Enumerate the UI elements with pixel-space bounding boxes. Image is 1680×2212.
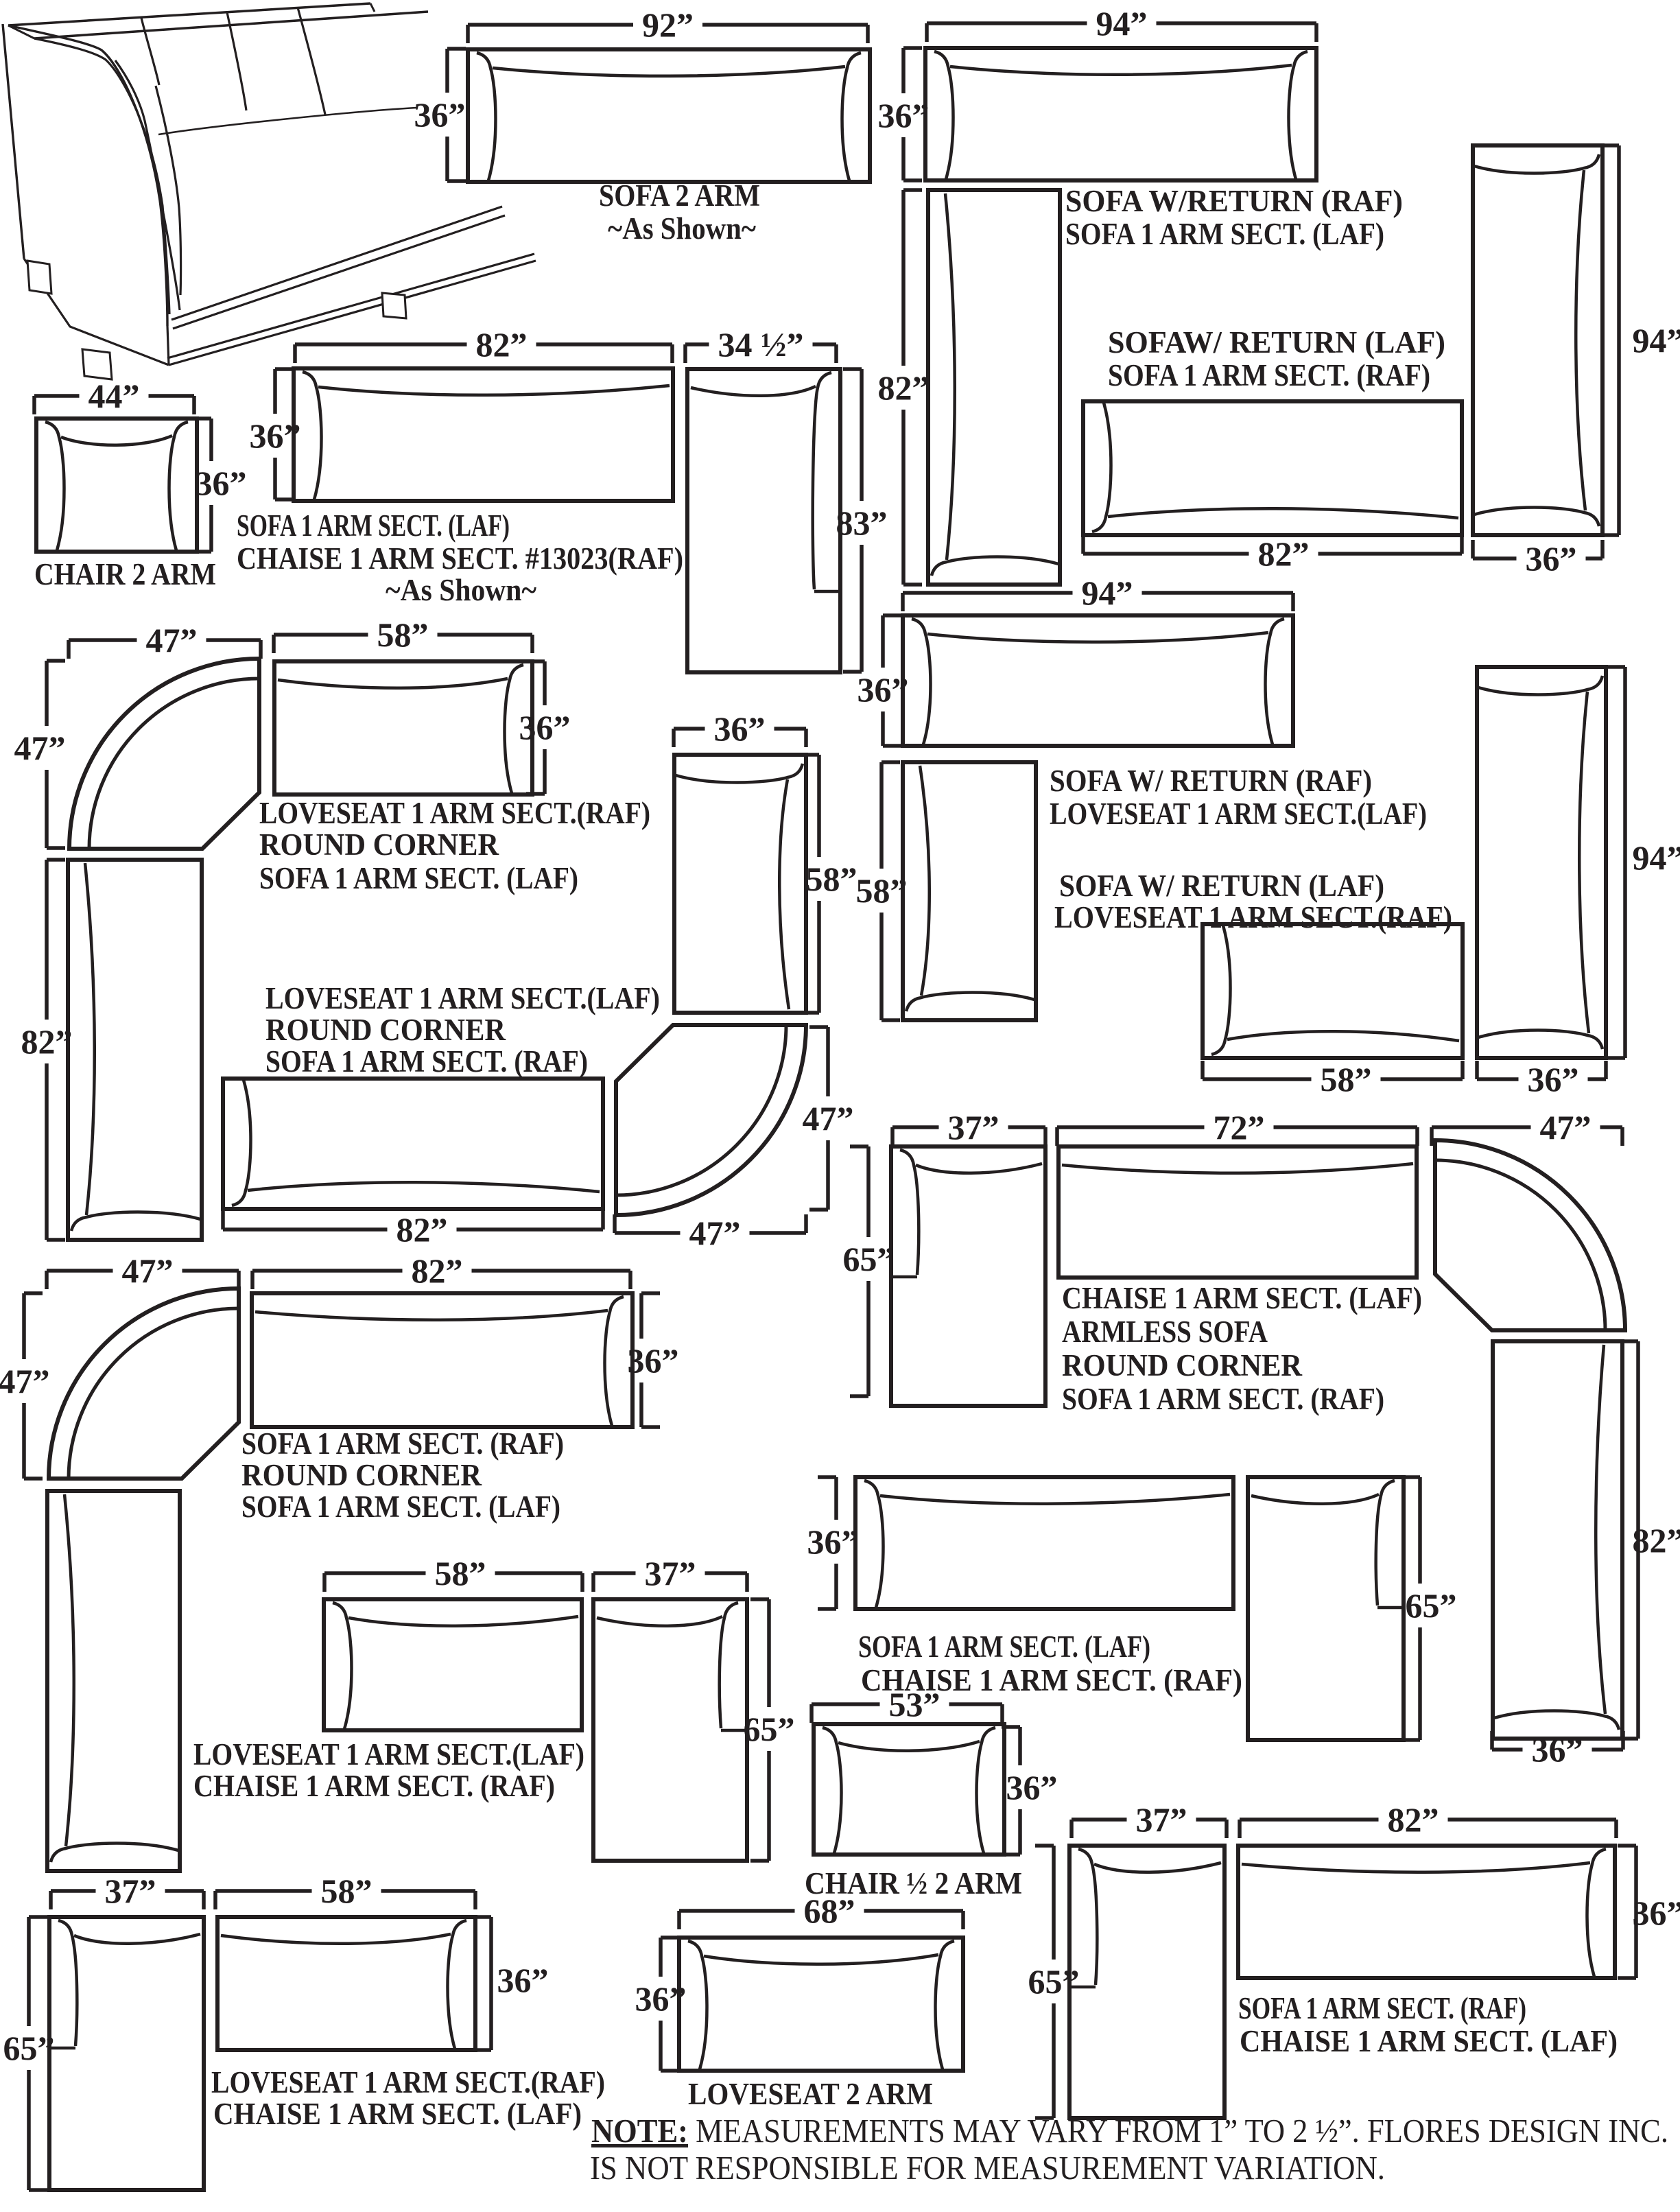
svg-text:82”: 82” xyxy=(878,368,930,407)
svg-text:36”: 36” xyxy=(250,416,301,455)
svg-text:CHAISE 1 ARM SECT. #13023(RAF): CHAISE 1 ARM SECT. #13023(RAF) xyxy=(237,541,683,576)
svg-text:94”: 94” xyxy=(1633,838,1680,877)
svg-text:58”: 58” xyxy=(321,1872,372,1910)
svg-text:LOVESEAT 1 ARM SECT.(LAF): LOVESEAT 1 ARM SECT.(LAF) xyxy=(265,981,660,1015)
svg-text:CHAISE 1 ARM SECT. (RAF): CHAISE 1 ARM SECT. (RAF) xyxy=(861,1663,1242,1697)
svg-text:SOFA 1 ARM SECT. (LAF): SOFA 1 ARM SECT. (LAF) xyxy=(858,1629,1150,1664)
svg-text:47”: 47” xyxy=(689,1214,741,1252)
svg-text:36”: 36” xyxy=(635,1979,687,2018)
svg-text:47”: 47” xyxy=(14,729,66,767)
svg-text:37”: 37” xyxy=(105,1872,156,1910)
svg-text:94”: 94” xyxy=(1633,321,1680,360)
svg-text:LOVESEAT 2 ARM: LOVESEAT 2 ARM xyxy=(688,2077,933,2111)
svg-text:82”: 82” xyxy=(1388,1800,1439,1839)
svg-text:ROUND CORNER: ROUND CORNER xyxy=(241,1458,482,1492)
svg-text:SOFA 1 ARM SECT. (RAF): SOFA 1 ARM SECT. (RAF) xyxy=(1108,358,1430,392)
svg-text:92”: 92” xyxy=(642,5,694,44)
svg-text:SOFA 1 ARM SECT. (RAF): SOFA 1 ARM SECT. (RAF) xyxy=(241,1426,564,1461)
svg-text:SOFA 2 ARM: SOFA 2 ARM xyxy=(599,178,760,213)
svg-text:37”: 37” xyxy=(645,1554,696,1592)
svg-text:82”: 82” xyxy=(412,1251,463,1290)
svg-text:36”: 36” xyxy=(196,464,247,502)
svg-text:36”: 36” xyxy=(857,670,909,709)
svg-text:LOVESEAT 1 ARM SECT.(LAF): LOVESEAT 1 ARM SECT.(LAF) xyxy=(1050,797,1427,831)
svg-text:47”: 47” xyxy=(803,1099,854,1138)
svg-text:36”: 36” xyxy=(807,1522,859,1561)
svg-text:ROUND CORNER: ROUND CORNER xyxy=(265,1013,506,1047)
svg-text:47”: 47” xyxy=(122,1251,174,1290)
svg-text:83”: 83” xyxy=(836,504,888,542)
svg-text:~As Shown~: ~As Shown~ xyxy=(386,573,537,607)
svg-text:SOFA 1 ARM SECT. (LAF): SOFA 1 ARM SECT. (LAF) xyxy=(241,1490,560,1524)
svg-text:44”: 44” xyxy=(88,377,140,415)
svg-text:NOTE: MEASUREMENTS MAY VARY FR: NOTE: MEASUREMENTS MAY VARY FROM 1” TO 2… xyxy=(591,2112,1668,2150)
svg-text:SOFA 1 ARM SECT. (LAF): SOFA 1 ARM SECT. (LAF) xyxy=(259,861,578,895)
svg-text:ROUND CORNER: ROUND CORNER xyxy=(1062,1348,1302,1382)
svg-text:37”: 37” xyxy=(1136,1800,1187,1839)
svg-text:65”: 65” xyxy=(744,1710,795,1748)
svg-text:58”: 58” xyxy=(435,1554,486,1592)
svg-text:58”: 58” xyxy=(806,860,857,898)
svg-text:SOFA 1 ARM SECT. (LAF): SOFA 1 ARM SECT. (LAF) xyxy=(1065,217,1384,251)
svg-text:CHAIR 2 ARM: CHAIR 2 ARM xyxy=(34,557,216,591)
svg-text:36”: 36” xyxy=(1526,539,1577,578)
svg-text:82”: 82” xyxy=(21,1022,73,1061)
svg-text:SOFA W/ RETURN (LAF): SOFA W/ RETURN (LAF) xyxy=(1059,869,1384,903)
svg-text:82”: 82” xyxy=(476,325,528,364)
svg-text:37”: 37” xyxy=(948,1108,999,1146)
svg-text:CHAIR ½ 2 ARM: CHAIR ½ 2 ARM xyxy=(805,1866,1022,1901)
svg-text:36”: 36” xyxy=(1532,1730,1583,1769)
svg-text:~As Shown~: ~As Shown~ xyxy=(608,211,757,246)
svg-text:94”: 94” xyxy=(1096,4,1148,43)
svg-text:47”: 47” xyxy=(0,1362,50,1400)
svg-text:LOVESEAT 1 ARM SECT.(RAF): LOVESEAT 1 ARM SECT.(RAF) xyxy=(259,796,650,830)
svg-text:65”: 65” xyxy=(3,2029,55,2067)
svg-text:CHAISE 1 ARM SECT. (LAF): CHAISE 1 ARM SECT. (LAF) xyxy=(1240,2024,1618,2058)
svg-text:SOFA 1 ARM SECT. (RAF): SOFA 1 ARM SECT. (RAF) xyxy=(1062,1382,1384,1416)
svg-text:CHAISE 1 ARM SECT. (LAF): CHAISE 1 ARM SECT. (LAF) xyxy=(1062,1281,1422,1315)
svg-text:82”: 82” xyxy=(1258,534,1310,573)
svg-text:SOFA 1 ARM SECT. (RAF): SOFA 1 ARM SECT. (RAF) xyxy=(1238,1991,1526,2025)
svg-text:36”: 36” xyxy=(714,709,766,748)
svg-text:34 ½”: 34 ½” xyxy=(718,325,804,364)
svg-text:LOVESEAT 1 ARM SECT.(LAF): LOVESEAT 1 ARM SECT.(LAF) xyxy=(193,1737,584,1772)
svg-text:CHAISE 1 ARM SECT. (RAF): CHAISE 1 ARM SECT. (RAF) xyxy=(193,1769,555,1803)
svg-text:LOVESEAT 1 ARM SECT.(RAF): LOVESEAT 1 ARM SECT.(RAF) xyxy=(1054,900,1452,934)
svg-text:SOFA W/RETURN (RAF): SOFA W/RETURN (RAF) xyxy=(1065,184,1403,218)
svg-text:CHAISE 1 ARM SECT. (LAF): CHAISE 1 ARM SECT. (LAF) xyxy=(213,2097,582,2131)
svg-text:36”: 36” xyxy=(519,708,571,746)
svg-text:65”: 65” xyxy=(1406,1586,1457,1625)
svg-text:IS NOT RESPONSIBLE FOR MEASURE: IS NOT RESPONSIBLE FOR MEASUREMENT VARIA… xyxy=(590,2149,1385,2187)
svg-text:ROUND CORNER: ROUND CORNER xyxy=(259,827,499,862)
svg-text:36”: 36” xyxy=(878,96,930,134)
svg-text:47”: 47” xyxy=(146,621,198,659)
svg-text:SOFAW/ RETURN (LAF): SOFAW/ RETURN (LAF) xyxy=(1108,325,1445,360)
svg-text:36”: 36” xyxy=(1006,1768,1058,1807)
svg-text:72”: 72” xyxy=(1214,1108,1265,1146)
svg-text:LOVESEAT 1 ARM SECT.(RAF): LOVESEAT 1 ARM SECT.(RAF) xyxy=(211,2065,605,2099)
svg-text:94”: 94” xyxy=(1082,574,1133,612)
svg-text:65”: 65” xyxy=(843,1240,895,1278)
svg-text:36”: 36” xyxy=(497,1961,549,1999)
svg-text:36”: 36” xyxy=(1633,1894,1680,1932)
svg-text:SOFA 1 ARM SECT. (LAF): SOFA 1 ARM SECT. (LAF) xyxy=(237,508,510,543)
svg-text:SOFA W/ RETURN (RAF): SOFA W/ RETURN (RAF) xyxy=(1050,764,1372,798)
svg-text:ARMLESS SOFA: ARMLESS SOFA xyxy=(1062,1315,1268,1349)
svg-text:65”: 65” xyxy=(1028,1962,1080,2001)
svg-text:36”: 36” xyxy=(1528,1060,1579,1098)
svg-text:58”: 58” xyxy=(1321,1060,1372,1098)
svg-text:58”: 58” xyxy=(856,871,908,910)
svg-text:36”: 36” xyxy=(628,1341,679,1380)
svg-text:SOFA 1 ARM SECT. (RAF): SOFA 1 ARM SECT. (RAF) xyxy=(265,1044,588,1079)
svg-text:82”: 82” xyxy=(1633,1521,1680,1560)
svg-text:82”: 82” xyxy=(397,1210,448,1249)
svg-text:47”: 47” xyxy=(1540,1108,1592,1146)
svg-text:58”: 58” xyxy=(377,615,429,654)
svg-text:36”: 36” xyxy=(414,95,466,134)
